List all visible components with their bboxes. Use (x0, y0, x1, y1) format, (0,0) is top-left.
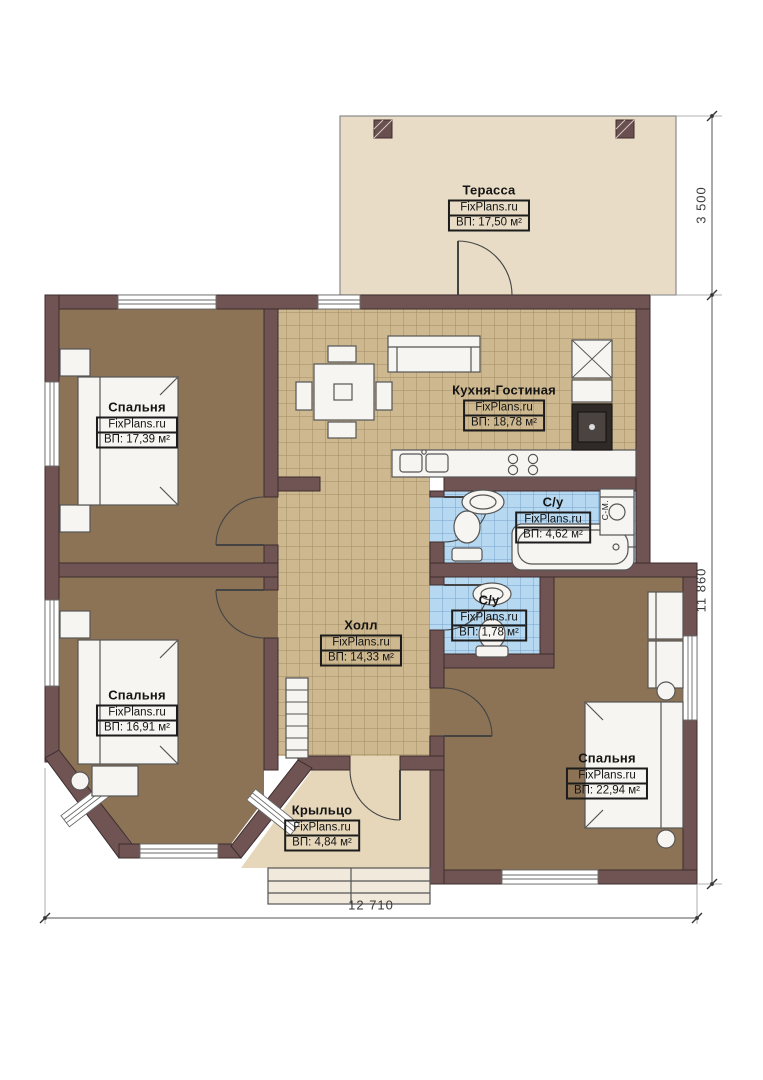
sofa (388, 336, 480, 372)
floor-plan-drawing (0, 0, 763, 1080)
ladder (286, 678, 308, 758)
bed (585, 702, 683, 828)
floor-plan-page: Терасса FixPlans.ru ВП: 17,50 м² Спальня… (0, 0, 763, 1080)
terrace-area (340, 116, 676, 295)
nightstand (657, 830, 675, 848)
terrace-column-icon (374, 120, 392, 138)
desk (92, 766, 138, 796)
terrace-column-icon (616, 120, 634, 138)
bed (78, 640, 178, 764)
sink (462, 490, 504, 514)
nightstand (60, 349, 90, 376)
cabinet (572, 380, 612, 402)
sink (473, 583, 511, 605)
oven (572, 404, 612, 450)
fridge (572, 340, 612, 378)
toilet (452, 511, 482, 561)
bed (78, 377, 178, 505)
nightstand (60, 505, 90, 532)
stool (71, 772, 89, 790)
porch-steps (268, 868, 430, 904)
washing-machine (600, 489, 634, 535)
nightstand (60, 611, 90, 638)
nightstand (657, 682, 675, 700)
